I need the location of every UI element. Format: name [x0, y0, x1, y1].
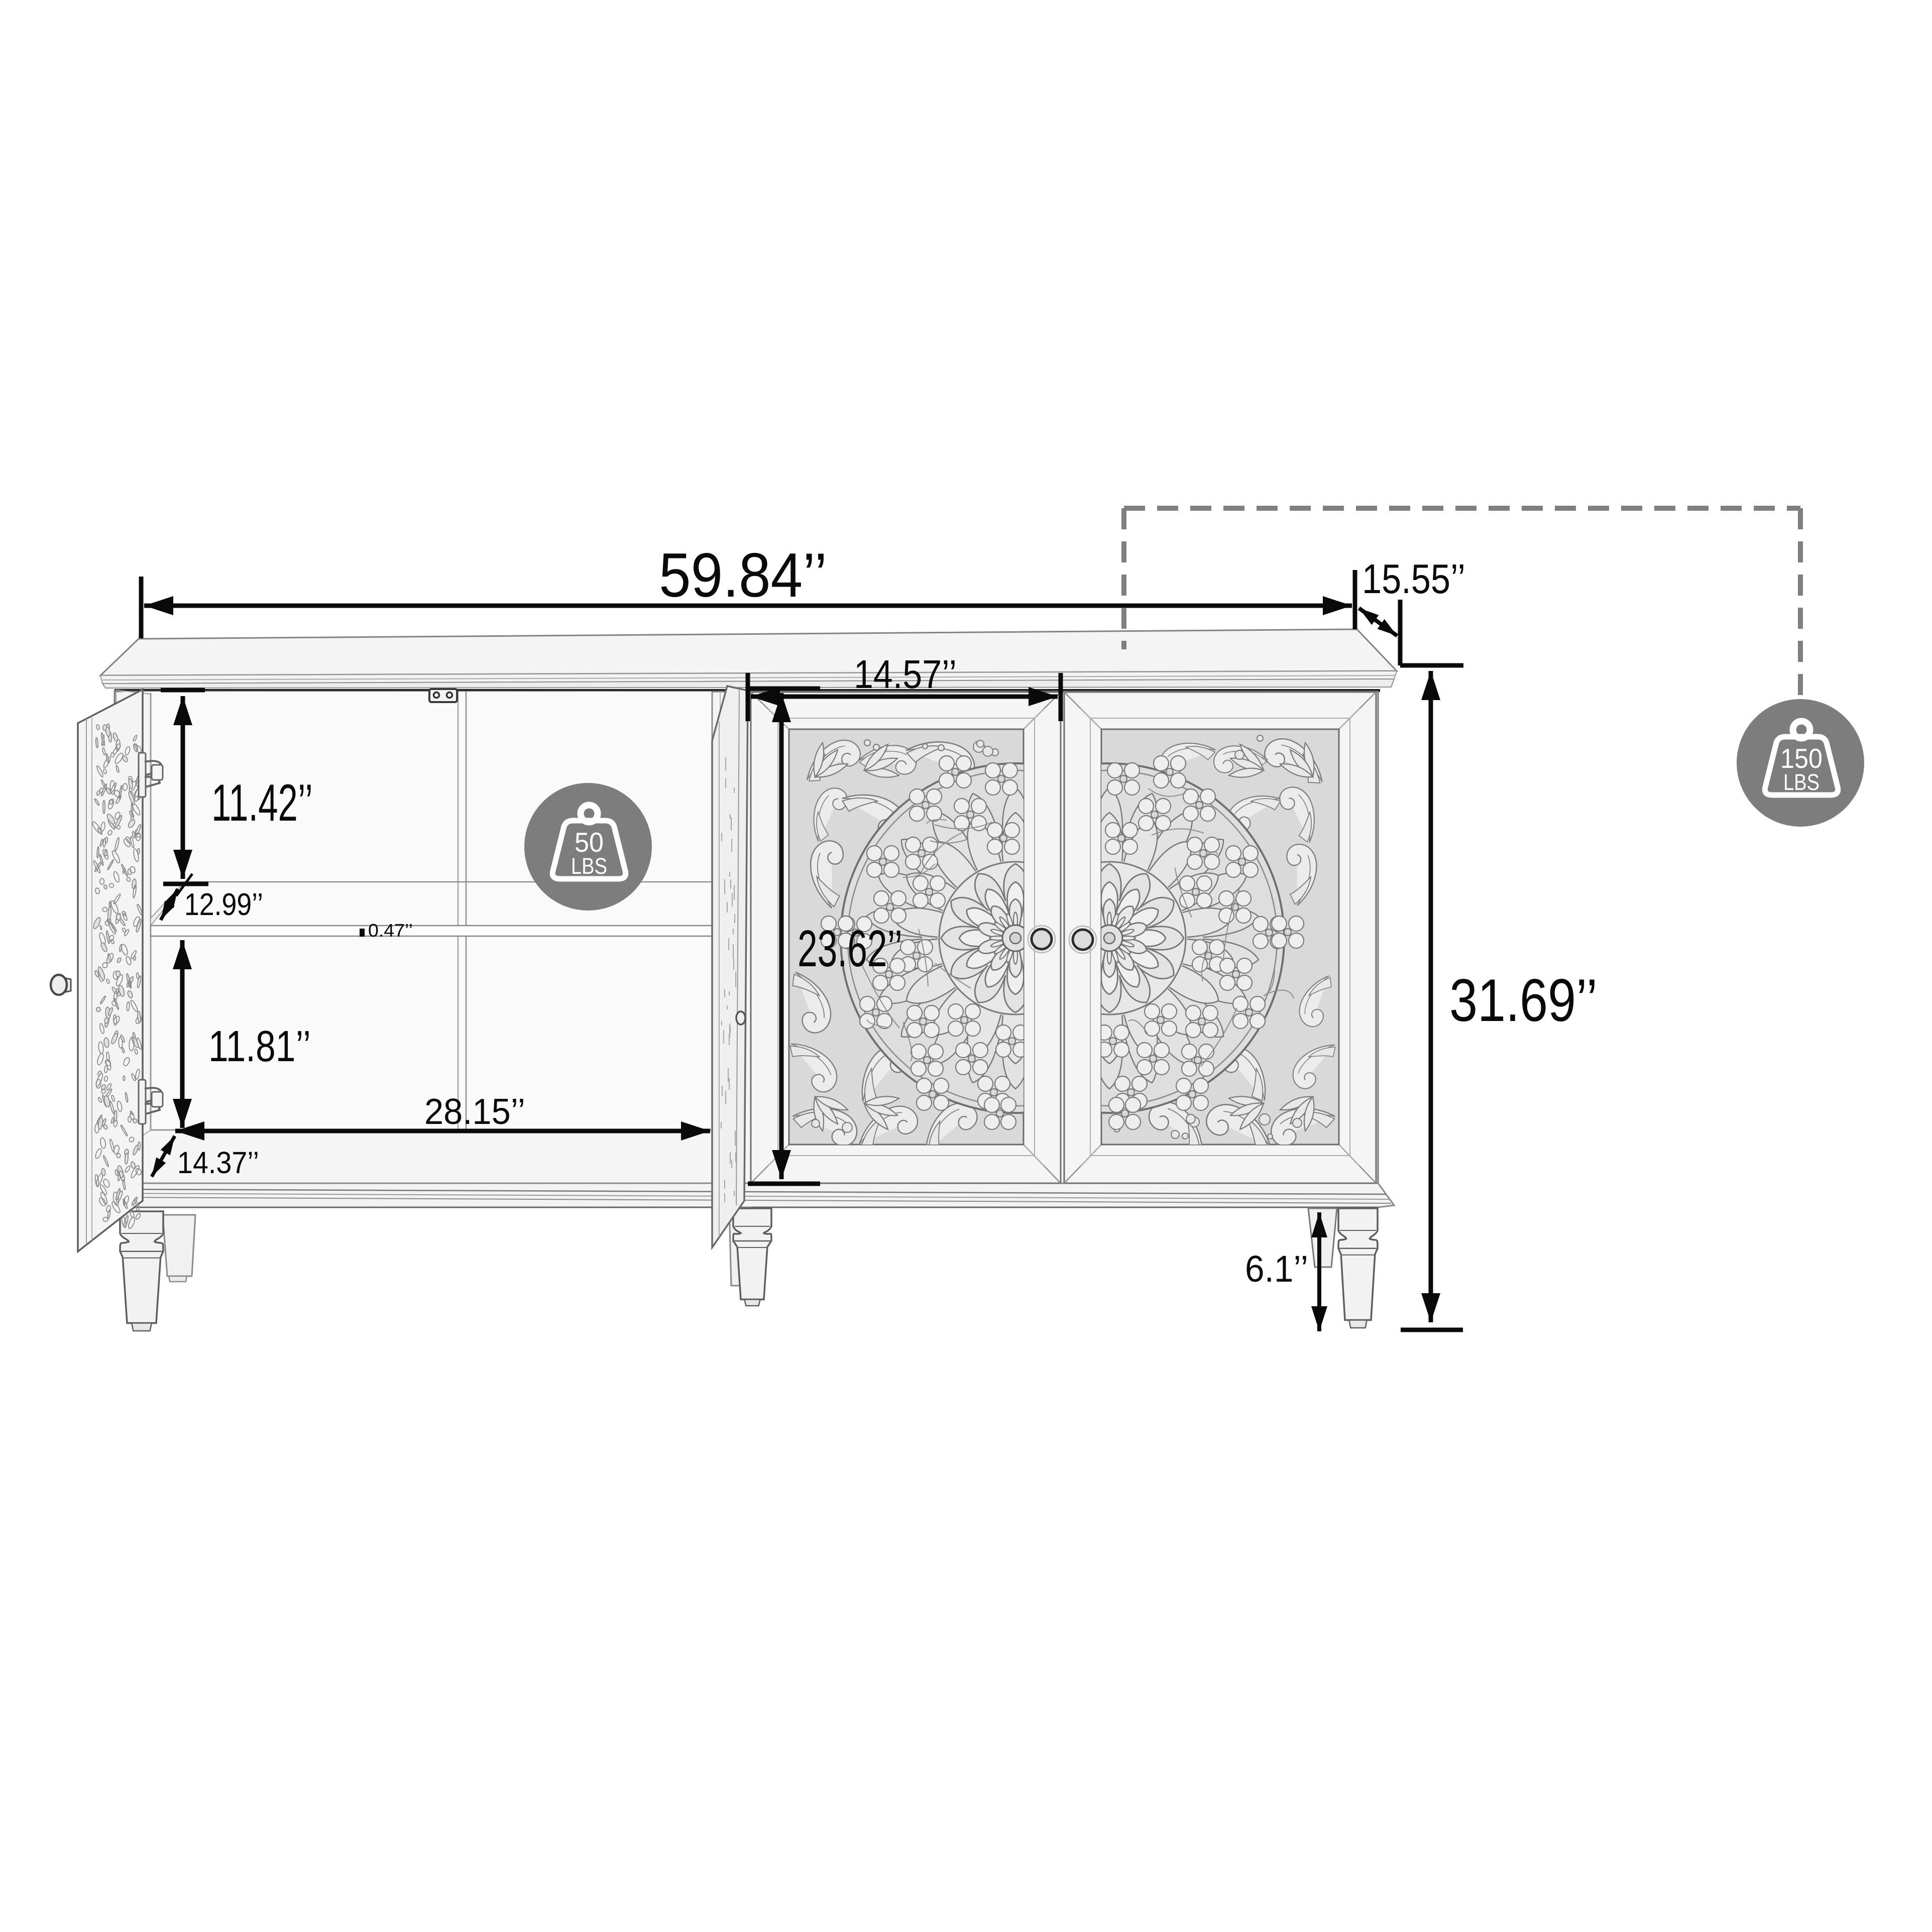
svg-text:LBS: LBS — [1783, 769, 1820, 795]
svg-text:11.81’’: 11.81’’ — [208, 1022, 311, 1071]
svg-text:15.55’’: 15.55’’ — [1362, 555, 1465, 602]
svg-text:31.69’’: 31.69’’ — [1449, 967, 1598, 1034]
svg-text:12.99’’: 12.99’’ — [184, 887, 263, 922]
svg-text:28.15’’: 28.15’’ — [424, 1092, 525, 1132]
svg-text:11.42’’: 11.42’’ — [211, 774, 313, 832]
svg-text:14.37’’: 14.37’’ — [177, 1146, 259, 1180]
svg-text:6.1’’: 6.1’’ — [1245, 1248, 1308, 1290]
svg-text:14.57’’: 14.57’’ — [854, 652, 957, 697]
svg-text:LBS: LBS — [571, 853, 607, 879]
svg-text:0.47’’: 0.47’’ — [368, 920, 413, 941]
svg-text:59.84’’: 59.84’’ — [659, 541, 827, 610]
svg-text:23.62’’: 23.62’’ — [798, 920, 902, 977]
